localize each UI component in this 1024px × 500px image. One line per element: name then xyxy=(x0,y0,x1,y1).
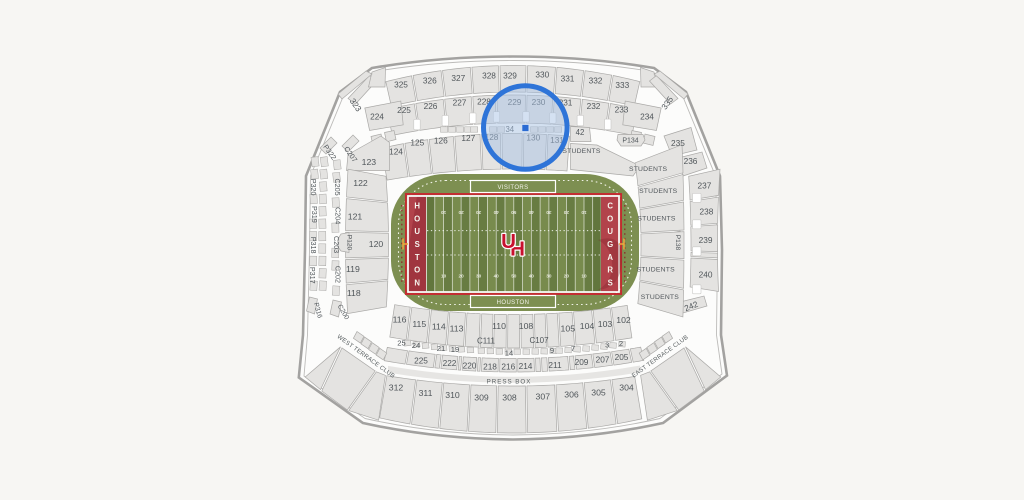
svg-text:PRESS BOX: PRESS BOX xyxy=(487,378,532,385)
svg-text:220: 220 xyxy=(463,361,477,371)
svg-text:2: 2 xyxy=(619,339,623,348)
svg-text:P134: P134 xyxy=(622,138,638,145)
svg-text:312: 312 xyxy=(389,383,404,393)
svg-text:40: 40 xyxy=(493,210,499,215)
svg-text:10: 10 xyxy=(581,274,587,279)
svg-text:40: 40 xyxy=(529,274,535,279)
svg-text:N: N xyxy=(414,279,420,288)
svg-text:113: 113 xyxy=(450,324,464,334)
svg-text:305: 305 xyxy=(591,388,606,398)
svg-text:40: 40 xyxy=(528,210,534,215)
svg-text:20: 20 xyxy=(564,274,570,279)
svg-text:102: 102 xyxy=(616,315,631,325)
svg-text:121: 121 xyxy=(348,212,363,222)
svg-text:332: 332 xyxy=(589,75,603,85)
svg-text:310: 310 xyxy=(445,390,460,400)
svg-text:326: 326 xyxy=(423,75,437,85)
svg-text:236: 236 xyxy=(684,156,698,166)
svg-text:103: 103 xyxy=(598,319,613,329)
svg-text:311: 311 xyxy=(419,388,433,398)
svg-text:21: 21 xyxy=(437,344,445,353)
svg-text:226: 226 xyxy=(424,101,438,111)
svg-text:30: 30 xyxy=(546,274,552,279)
svg-text:214: 214 xyxy=(519,361,533,371)
svg-text:U: U xyxy=(501,230,516,253)
svg-text:104: 104 xyxy=(580,321,595,331)
svg-text:C203: C203 xyxy=(332,236,341,253)
svg-text:C111: C111 xyxy=(477,337,495,346)
svg-text:C: C xyxy=(607,202,613,211)
svg-text:P319: P319 xyxy=(310,206,319,223)
svg-text:STUDENTS: STUDENTS xyxy=(637,267,675,274)
svg-text:124: 124 xyxy=(389,147,403,157)
svg-text:P318: P318 xyxy=(309,237,318,254)
svg-text:50: 50 xyxy=(511,274,517,279)
svg-text:330: 330 xyxy=(535,70,549,80)
svg-text:C205: C205 xyxy=(333,179,342,196)
svg-text:R: R xyxy=(607,266,613,275)
svg-text:STUDENTS: STUDENTS xyxy=(629,166,667,173)
svg-text:S: S xyxy=(415,240,420,249)
svg-text:209: 209 xyxy=(575,357,589,367)
svg-text:10: 10 xyxy=(441,274,447,279)
svg-text:STUDENTS: STUDENTS xyxy=(641,294,679,301)
svg-text:P120: P120 xyxy=(346,235,353,251)
svg-text:222: 222 xyxy=(443,358,457,368)
svg-text:C204: C204 xyxy=(333,207,342,224)
svg-text:115: 115 xyxy=(412,319,426,329)
svg-text:207: 207 xyxy=(596,355,610,365)
svg-text:308: 308 xyxy=(502,393,517,403)
svg-text:40: 40 xyxy=(494,274,500,279)
svg-text:329: 329 xyxy=(503,71,517,81)
svg-text:238: 238 xyxy=(699,207,713,217)
svg-text:237: 237 xyxy=(697,181,711,191)
svg-text:U: U xyxy=(607,227,613,236)
svg-text:20: 20 xyxy=(458,274,464,279)
svg-text:24: 24 xyxy=(412,341,420,350)
svg-text:225: 225 xyxy=(397,105,411,115)
svg-text:126: 126 xyxy=(434,136,448,146)
svg-text:227: 227 xyxy=(453,97,467,107)
svg-text:T: T xyxy=(415,253,420,262)
svg-text:H: H xyxy=(414,202,420,211)
svg-text:42: 42 xyxy=(576,128,585,137)
svg-text:309: 309 xyxy=(474,393,489,403)
svg-text:20: 20 xyxy=(563,210,569,215)
svg-text:C202: C202 xyxy=(333,266,342,283)
svg-text:307: 307 xyxy=(536,392,551,402)
svg-text:50: 50 xyxy=(511,210,517,215)
svg-text:STUDENTS: STUDENTS xyxy=(637,215,675,222)
svg-text:211: 211 xyxy=(548,360,562,370)
svg-text:235: 235 xyxy=(671,138,685,148)
svg-text:224: 224 xyxy=(370,111,384,121)
svg-text:9: 9 xyxy=(550,346,554,355)
svg-text:225: 225 xyxy=(414,356,428,366)
svg-text:25: 25 xyxy=(397,338,405,347)
svg-text:20: 20 xyxy=(458,210,464,215)
svg-text:P320: P320 xyxy=(309,179,318,196)
svg-text:118: 118 xyxy=(347,288,361,298)
svg-text:233: 233 xyxy=(615,104,629,114)
svg-text:306: 306 xyxy=(564,390,579,400)
svg-text:108: 108 xyxy=(519,321,534,331)
svg-text:14: 14 xyxy=(505,348,513,357)
svg-text:P317: P317 xyxy=(308,267,317,284)
svg-text:10: 10 xyxy=(581,210,587,215)
svg-text:116: 116 xyxy=(393,315,407,325)
svg-text:30: 30 xyxy=(546,210,552,215)
svg-text:O: O xyxy=(414,214,420,223)
svg-text:240: 240 xyxy=(699,270,713,280)
svg-text:7: 7 xyxy=(571,344,575,353)
svg-text:325: 325 xyxy=(394,79,408,89)
svg-text:327: 327 xyxy=(451,73,465,83)
svg-text:O: O xyxy=(414,266,420,275)
svg-text:304: 304 xyxy=(619,383,634,393)
svg-text:105: 105 xyxy=(561,324,576,334)
svg-text:127: 127 xyxy=(461,133,475,143)
svg-text:232: 232 xyxy=(587,101,601,111)
svg-text:30: 30 xyxy=(476,210,482,215)
svg-text:239: 239 xyxy=(699,235,713,245)
svg-text:3: 3 xyxy=(605,340,609,349)
svg-text:125: 125 xyxy=(410,138,424,148)
svg-text:C107: C107 xyxy=(529,336,549,345)
svg-text:328: 328 xyxy=(482,71,496,81)
svg-text:VISITORS: VISITORS xyxy=(497,185,528,191)
svg-text:P138: P138 xyxy=(674,235,681,251)
svg-text:S: S xyxy=(608,279,613,288)
svg-text:205: 205 xyxy=(615,352,629,362)
svg-text:123: 123 xyxy=(362,157,377,167)
svg-text:331: 331 xyxy=(561,73,575,83)
svg-text:G: G xyxy=(607,240,613,249)
svg-text:10: 10 xyxy=(441,210,447,215)
svg-text:110: 110 xyxy=(492,321,506,331)
svg-text:114: 114 xyxy=(432,322,446,332)
svg-text:234: 234 xyxy=(640,111,654,121)
svg-text:STUDENTS: STUDENTS xyxy=(639,188,677,195)
svg-text:STUDENTS: STUDENTS xyxy=(562,148,600,155)
svg-text:122: 122 xyxy=(353,178,368,188)
svg-text:HOUSTON: HOUSTON xyxy=(497,300,530,306)
svg-text:120: 120 xyxy=(369,239,384,249)
svg-text:216: 216 xyxy=(501,362,515,372)
svg-text:19: 19 xyxy=(451,345,459,354)
svg-text:333: 333 xyxy=(615,80,629,90)
svg-text:U: U xyxy=(414,227,420,236)
svg-text:218: 218 xyxy=(483,362,497,372)
svg-text:119: 119 xyxy=(346,264,360,274)
svg-text:30: 30 xyxy=(476,274,482,279)
svg-text:O: O xyxy=(607,214,613,223)
svg-text:A: A xyxy=(607,253,613,262)
